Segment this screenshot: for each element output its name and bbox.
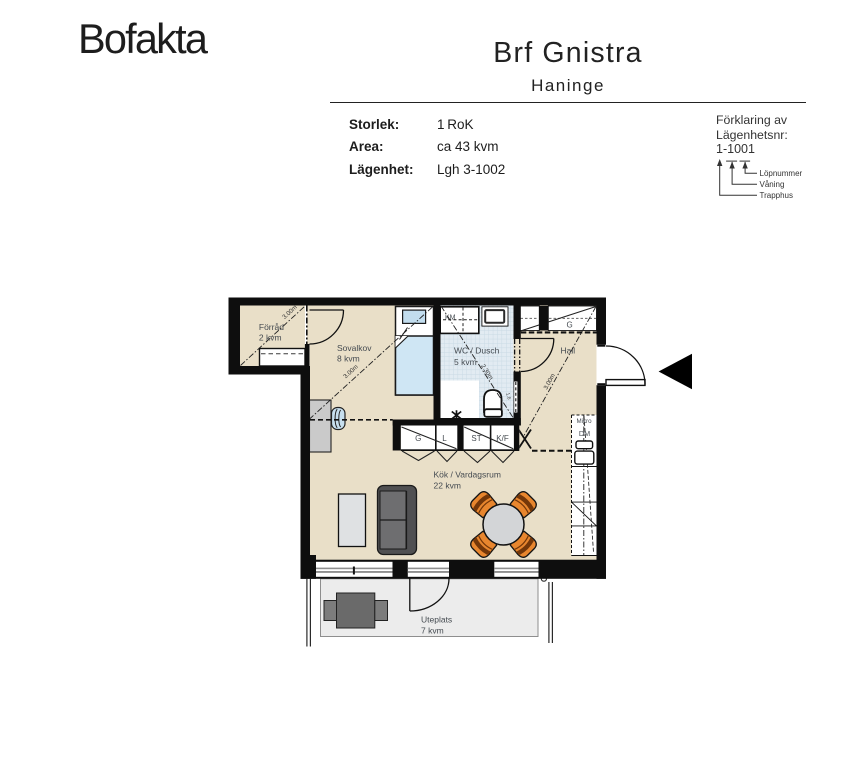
svg-text:Uteplats: Uteplats [421,615,452,625]
svg-text:G: G [415,434,421,443]
svg-text:5 kvm: 5 kvm [454,357,477,367]
svg-text:ST: ST [471,434,481,443]
svg-text:7 kvm: 7 kvm [421,626,444,636]
svg-text:Kök / Vardagsrum: Kök / Vardagsrum [434,470,501,480]
svg-text:WC / Dusch: WC / Dusch [454,346,500,356]
svg-text:L: L [442,434,447,443]
svg-text:8 kvm: 8 kvm [337,354,360,364]
svg-text:Sovalkov: Sovalkov [337,343,372,353]
svg-text:Förråd: Förråd [259,322,284,332]
svg-text:22 kvm: 22 kvm [434,481,461,491]
svg-text:Mikro: Mikro [576,418,592,425]
svg-text:DM: DM [579,429,590,438]
svg-text:K/F: K/F [496,434,509,443]
svg-text:2 kvm: 2 kvm [259,333,282,343]
svg-text:G: G [567,321,573,330]
